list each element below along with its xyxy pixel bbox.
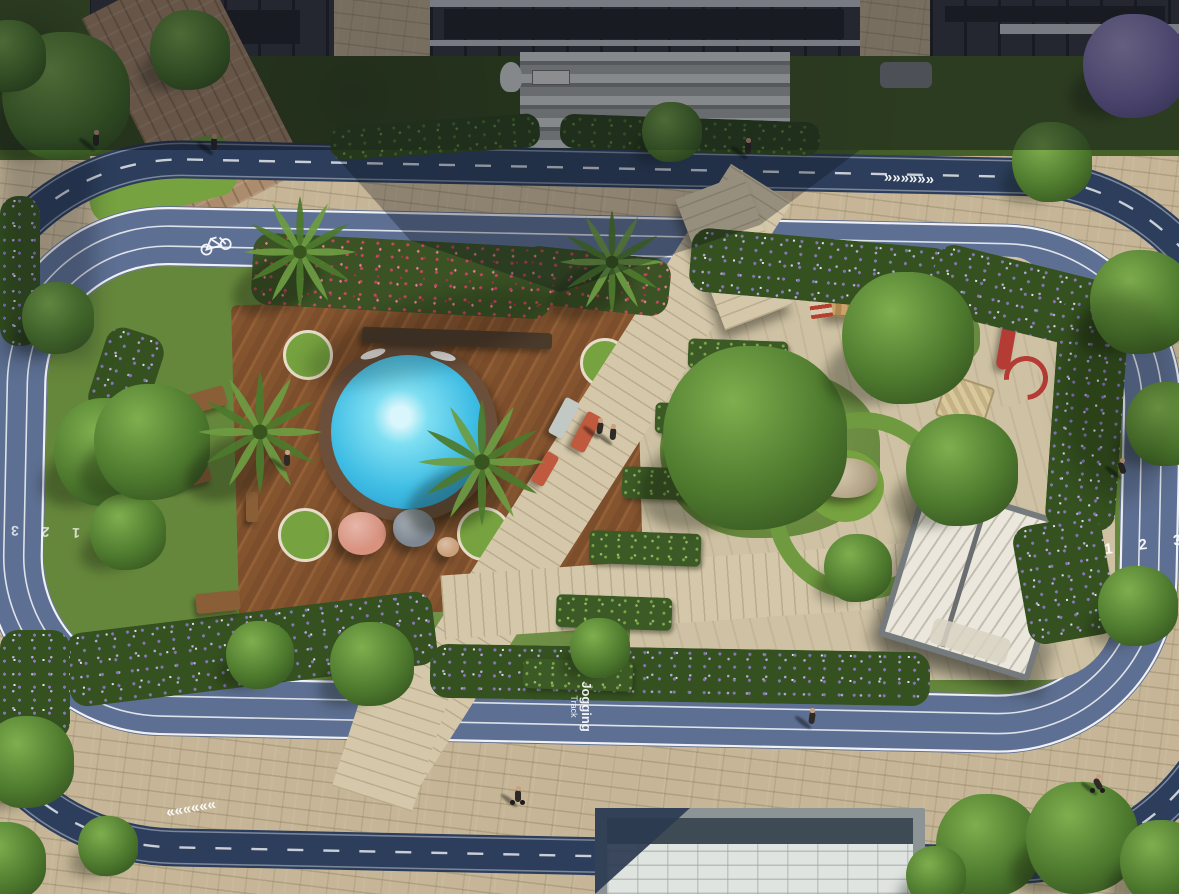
person-head (285, 450, 290, 455)
jogging-label-line1: Jogging (579, 681, 594, 732)
pedestrian (87, 130, 107, 156)
people-layer (0, 0, 1179, 894)
person-head (746, 138, 751, 143)
person-body (284, 454, 290, 466)
person-head (212, 134, 217, 139)
person-head (810, 708, 815, 713)
pedestrian (205, 134, 225, 160)
person-head (94, 130, 99, 135)
chevrons-top: »»»»»» (884, 169, 935, 189)
cyclist (1089, 774, 1109, 800)
pedestrian (803, 708, 823, 734)
jogging-track-label: Jogging Track (569, 681, 594, 732)
pedestrian (1113, 458, 1133, 484)
courtyard-aerial-rendering: 1 2 3 1 2 3 »»»»»» «««««« Jogging Track (0, 0, 1179, 894)
person-head (1096, 774, 1101, 779)
lane-numbers-left: 1 2 3 (6, 523, 80, 542)
pedestrian (278, 450, 298, 476)
bike-wheel (1090, 788, 1095, 793)
person-body (211, 138, 217, 150)
person-head (611, 424, 616, 429)
bike-wheel (520, 800, 525, 805)
person-body (745, 142, 751, 154)
pedestrian (604, 424, 624, 450)
person-head (516, 786, 521, 791)
person-body (609, 428, 616, 440)
cyclist (509, 786, 529, 812)
person-body (1117, 461, 1127, 474)
person-body (515, 790, 521, 802)
person-head (598, 418, 603, 423)
bike-wheel (510, 800, 515, 805)
jogging-label-line2: Track (569, 681, 579, 732)
person-body (93, 134, 99, 146)
person-body (808, 712, 816, 725)
person-head (1120, 458, 1125, 463)
pedestrian (739, 138, 759, 164)
